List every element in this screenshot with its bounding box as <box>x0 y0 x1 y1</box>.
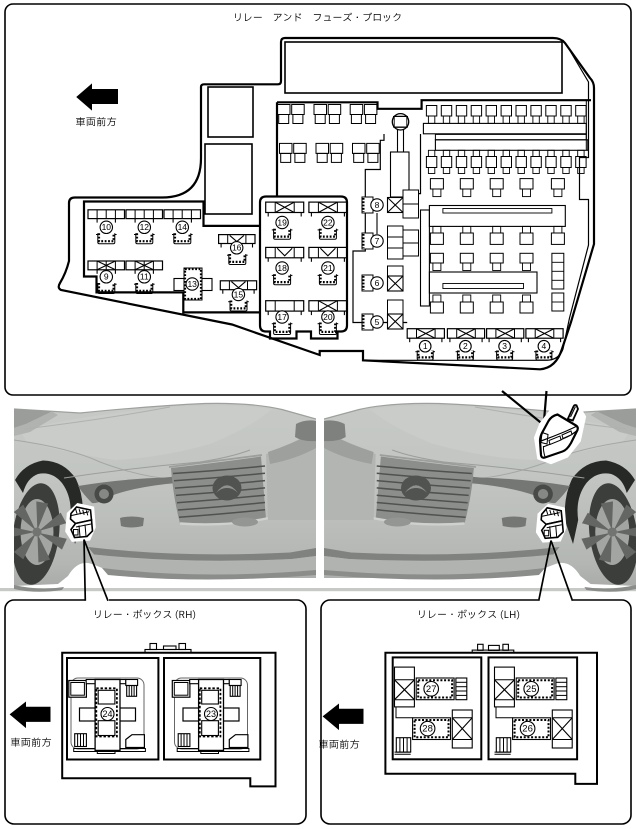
svg-text:10: 10 <box>102 222 112 232</box>
svg-text:8: 8 <box>375 200 380 210</box>
svg-text:12: 12 <box>140 222 150 232</box>
svg-text:27: 27 <box>426 684 437 695</box>
svg-text:25: 25 <box>526 684 537 695</box>
svg-text:16: 16 <box>232 243 242 253</box>
svg-text:21: 21 <box>323 263 333 273</box>
svg-text:17: 17 <box>277 312 287 322</box>
svg-text:13: 13 <box>187 279 197 289</box>
svg-text:4: 4 <box>542 341 547 351</box>
svg-text:18: 18 <box>277 263 287 273</box>
svg-text:3: 3 <box>502 341 507 351</box>
svg-text:6: 6 <box>375 278 380 288</box>
svg-text:28: 28 <box>422 724 433 735</box>
svg-text:26: 26 <box>522 724 533 735</box>
svg-text:7: 7 <box>375 236 380 246</box>
svg-text:5: 5 <box>375 317 380 327</box>
svg-text:24: 24 <box>102 709 112 719</box>
svg-text:14: 14 <box>178 222 188 232</box>
svg-text:2: 2 <box>463 341 468 351</box>
svg-text:15: 15 <box>234 289 244 299</box>
svg-text:1: 1 <box>423 341 428 351</box>
svg-text:9: 9 <box>104 272 109 282</box>
svg-text:23: 23 <box>206 709 216 719</box>
svg-text:11: 11 <box>140 272 149 282</box>
svg-text:20: 20 <box>323 312 333 322</box>
svg-text:22: 22 <box>323 217 333 227</box>
svg-text:19: 19 <box>277 217 287 227</box>
